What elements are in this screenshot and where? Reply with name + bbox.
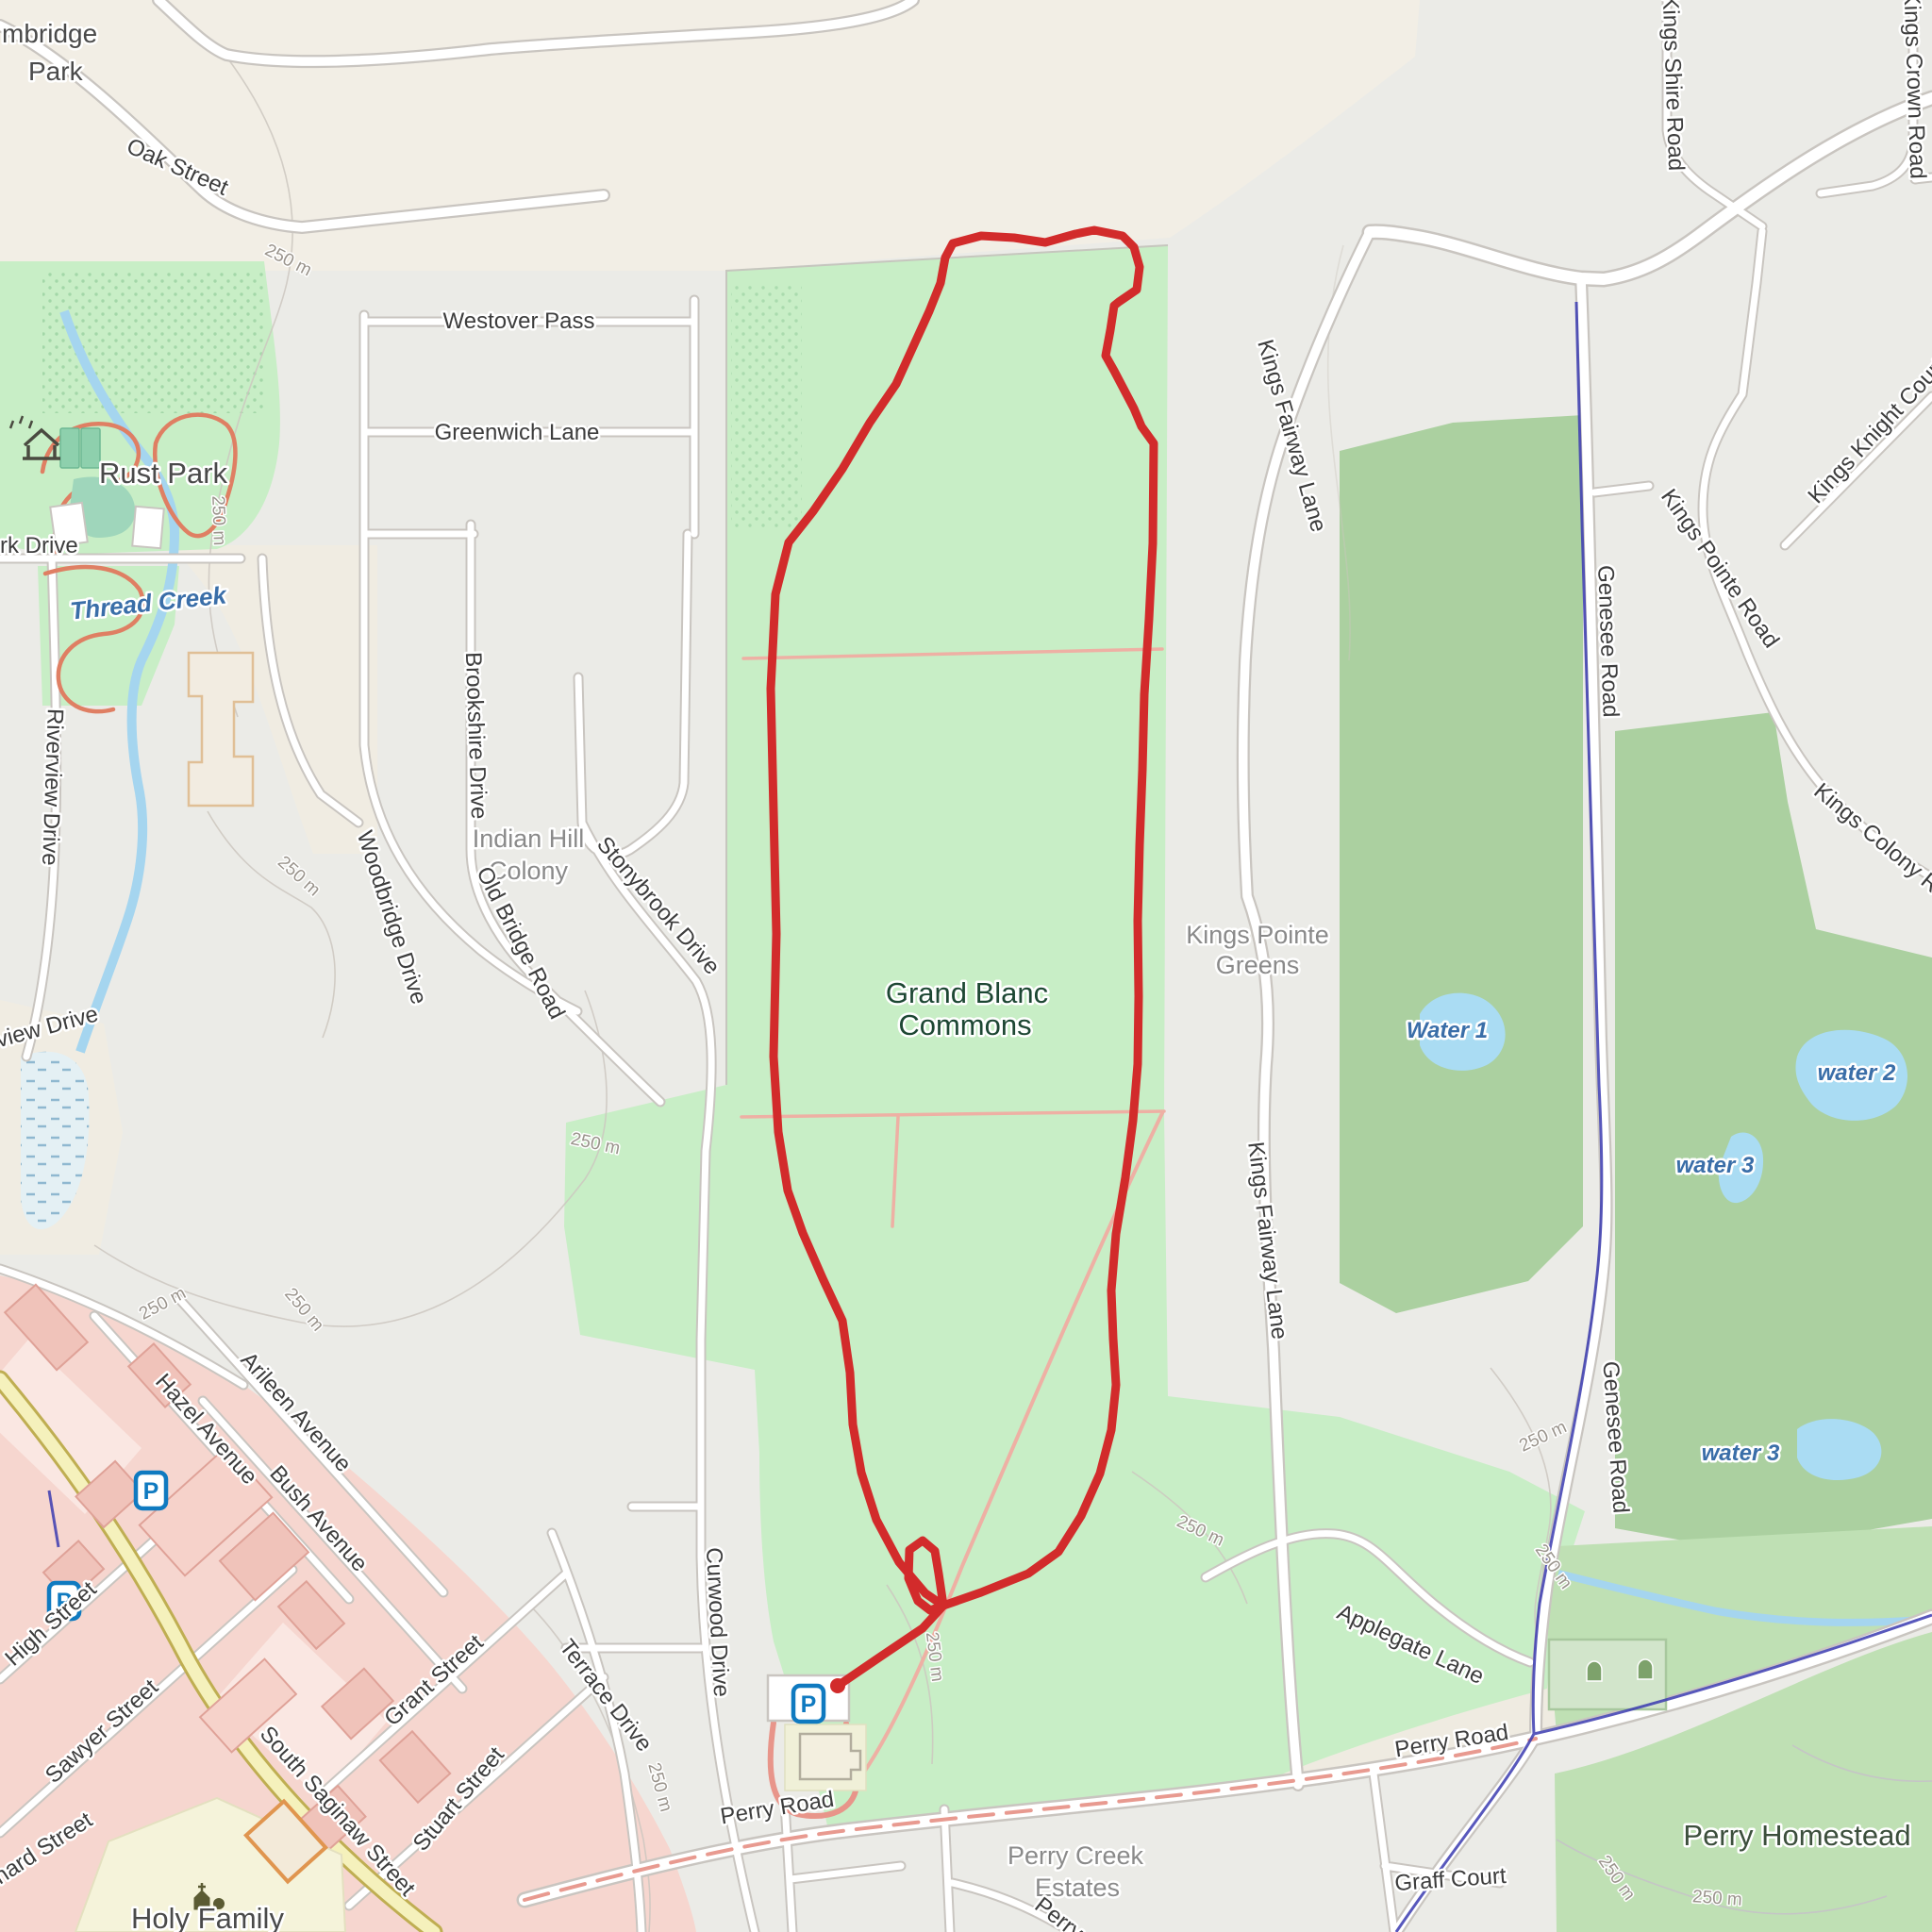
route-start-marker	[830, 1678, 845, 1693]
contour-label: 250 m	[1691, 1887, 1742, 1910]
cambridge-park-label: mbridge	[2, 19, 97, 48]
perry-creek-estates-label: Perry Creek	[1008, 1841, 1144, 1870]
grand-blanc-commons-label: Commons	[898, 1008, 1031, 1041]
grand-blanc-commons-label: Grand Blanc	[886, 976, 1048, 1009]
cambridge-park-label: Park	[28, 57, 84, 86]
tennis-court	[60, 428, 79, 468]
westover-pass-label: Westover Pass	[443, 308, 595, 334]
tennis-court	[81, 428, 100, 468]
water-2-label: water 2	[1818, 1060, 1896, 1086]
nature-center-building	[800, 1734, 860, 1779]
indian-hill-colony-label: Indian Hill	[473, 824, 585, 853]
holy-family-label: Holy Family	[131, 1902, 284, 1932]
rust-park-label: Rust Park	[99, 457, 228, 490]
svg-text:P: P	[143, 1478, 159, 1505]
contour-label: 250 m	[208, 495, 229, 546]
svg-text:P: P	[801, 1691, 817, 1718]
parking-icon: P	[136, 1473, 166, 1508]
park-drive-label: rk Drive	[0, 533, 78, 558]
water-3-label: water 3	[1702, 1441, 1780, 1466]
kings-pointe-greens-label: Kings Pointe	[1186, 921, 1329, 949]
greenwich-lane-label: Greenwich Lane	[435, 420, 600, 445]
genesee-road-label: Genesee Road	[1592, 565, 1624, 718]
map-canvas[interactable]: P P P mbridge Park Oak Street Westove	[0, 0, 1932, 1932]
parking-lot	[132, 507, 164, 548]
parking-icon: P	[793, 1686, 824, 1722]
kings-pointe-greens-label: Greens	[1216, 951, 1300, 979]
water-1-label: Water 1	[1407, 1018, 1488, 1043]
perry-homestead-label: Perry Homestead	[1683, 1819, 1910, 1852]
water-3-label: water 3	[1676, 1153, 1755, 1178]
